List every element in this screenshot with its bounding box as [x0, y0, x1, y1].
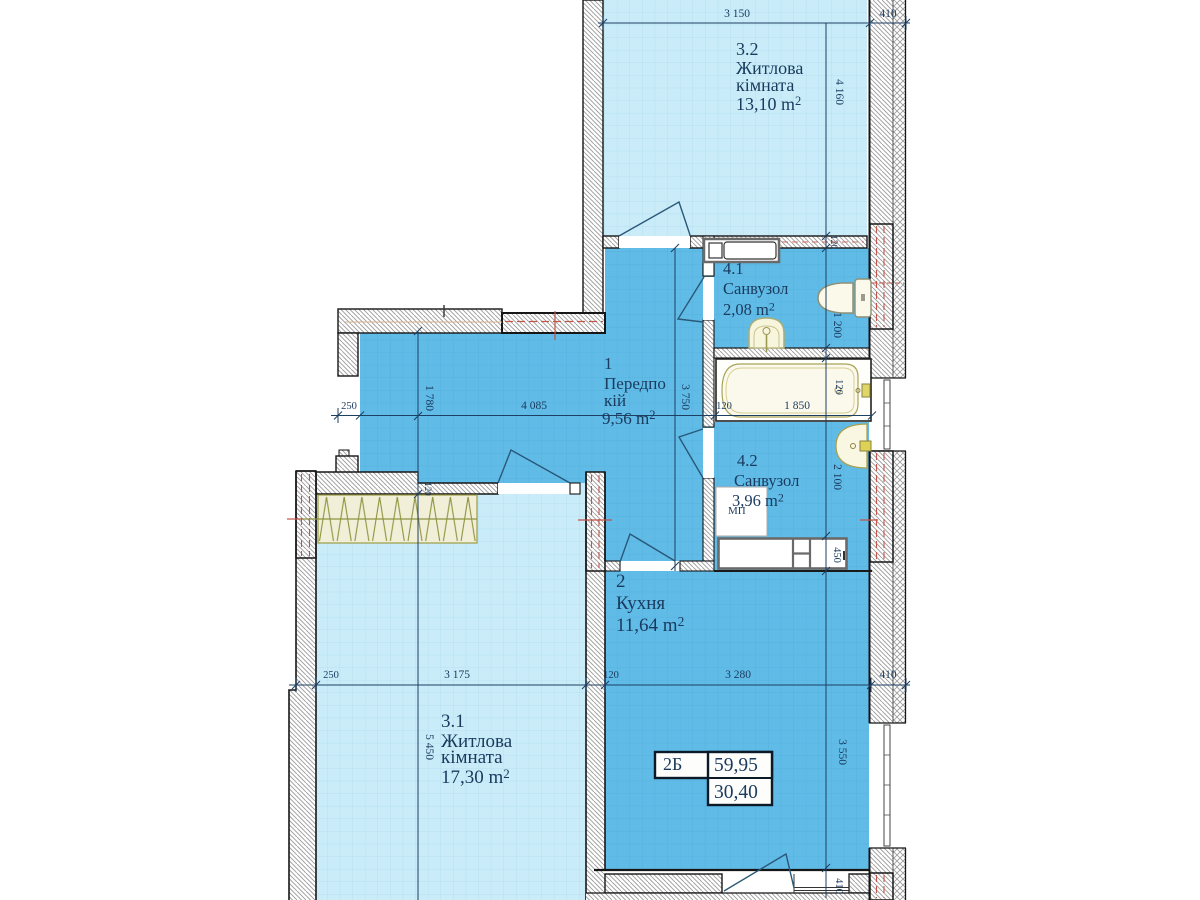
svg-text:410: 410 [879, 8, 897, 20]
svg-text:5 450: 5 450 [423, 734, 435, 760]
svg-text:4.1: 4.1 [723, 259, 744, 278]
svg-text:3 150: 3 150 [724, 8, 750, 20]
svg-text:450: 450 [831, 547, 842, 563]
svg-text:3.2: 3.2 [736, 39, 759, 59]
svg-text:2,08 m2: 2,08 m2 [723, 300, 775, 320]
svg-text:1: 1 [604, 354, 613, 373]
svg-text:120: 120 [423, 482, 433, 496]
svg-text:Санвузол: Санвузол [723, 279, 788, 298]
svg-text:кімната: кімната [441, 747, 503, 768]
svg-text:2 100: 2 100 [831, 464, 843, 490]
svg-text:1 850: 1 850 [784, 400, 810, 412]
svg-text:3.1: 3.1 [441, 711, 465, 732]
svg-text:3 280: 3 280 [725, 669, 751, 681]
svg-text:1 780: 1 780 [423, 385, 435, 411]
svg-text:3,96 m2: 3,96 m2 [732, 491, 784, 511]
svg-text:4.2: 4.2 [737, 451, 758, 470]
svg-text:410: 410 [833, 878, 844, 894]
svg-text:17,30 m2: 17,30 m2 [441, 766, 510, 788]
svg-text:120: 120 [828, 235, 838, 250]
svg-text:9,56 m2: 9,56 m2 [602, 408, 655, 428]
svg-text:Кухня: Кухня [616, 593, 665, 614]
svg-text:4 160: 4 160 [833, 79, 845, 105]
svg-text:250: 250 [323, 670, 339, 681]
svg-text:30,40: 30,40 [714, 782, 758, 803]
svg-text:2: 2 [616, 571, 626, 592]
svg-text:Санвузол: Санвузол [734, 471, 799, 490]
svg-text:13,10 m2: 13,10 m2 [736, 94, 801, 114]
svg-text:250: 250 [341, 401, 357, 412]
svg-text:кій: кій [604, 391, 626, 410]
svg-text:120: 120 [833, 379, 844, 395]
svg-text:2Б: 2Б [663, 754, 682, 774]
svg-text:120: 120 [716, 401, 732, 412]
svg-text:кімната: кімната [736, 75, 794, 95]
svg-text:3 550: 3 550 [836, 739, 848, 765]
svg-text:3 175: 3 175 [444, 669, 470, 681]
svg-text:120: 120 [603, 670, 619, 681]
svg-text:59,95: 59,95 [714, 755, 758, 776]
svg-text:4 085: 4 085 [521, 400, 547, 412]
svg-text:3 750: 3 750 [679, 384, 691, 410]
svg-text:410: 410 [879, 669, 897, 681]
svg-text:1 200: 1 200 [831, 312, 843, 338]
svg-text:11,64 m2: 11,64 m2 [616, 614, 684, 636]
